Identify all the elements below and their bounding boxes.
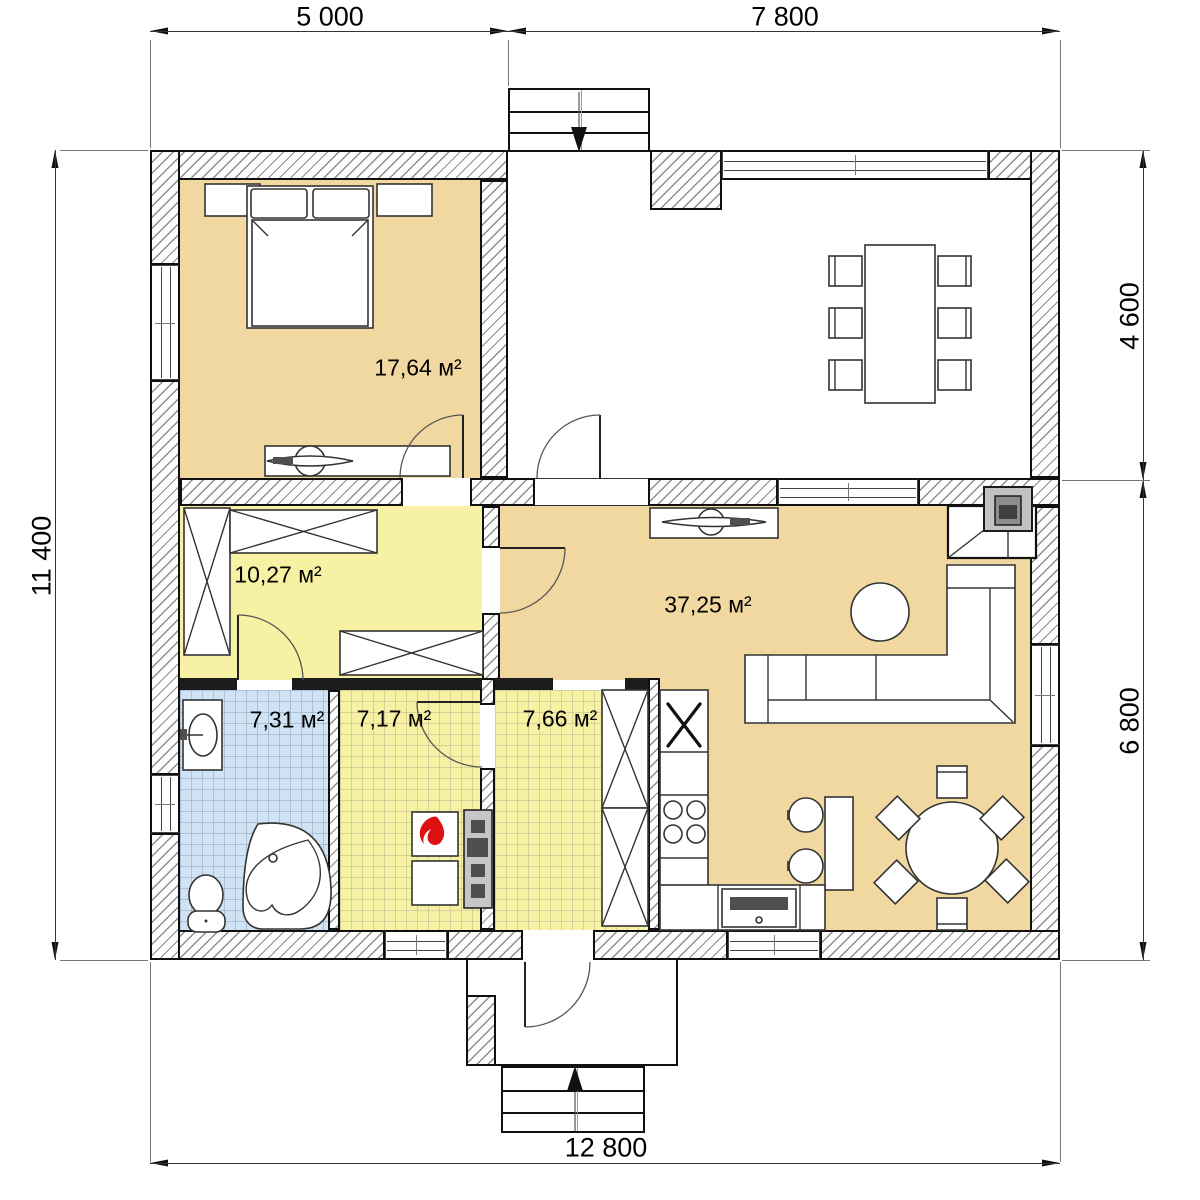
chair bbox=[829, 308, 862, 338]
washing-machine bbox=[180, 700, 222, 770]
dim-top-right: 7 800 bbox=[751, 2, 819, 33]
ext-line bbox=[1060, 40, 1061, 148]
room-label-living: 37,25 м² bbox=[664, 592, 751, 619]
floor-plan-canvas: 5 000 7 800 11 400 4 600 6 800 12 800 17… bbox=[0, 0, 1200, 1200]
ext-line bbox=[150, 962, 151, 1162]
ext-line bbox=[150, 40, 151, 148]
chimney-flue bbox=[464, 810, 492, 908]
bar-counter bbox=[825, 797, 853, 890]
ext-line bbox=[60, 150, 148, 151]
ext-line bbox=[508, 40, 509, 86]
hall-living-door bbox=[500, 548, 565, 613]
ext-line bbox=[1062, 480, 1150, 481]
ext-line bbox=[60, 960, 148, 961]
living-convector bbox=[650, 508, 778, 538]
bathroom-door bbox=[238, 615, 303, 680]
bar-stool bbox=[787, 798, 823, 832]
furniture-layer bbox=[0, 0, 1200, 1200]
chair bbox=[938, 308, 971, 338]
dim-left: 11 400 bbox=[27, 516, 58, 597]
chair bbox=[937, 898, 967, 930]
room-label-bathroom: 7,31 м² bbox=[250, 707, 325, 734]
chair bbox=[938, 360, 971, 390]
boiler-cabinet bbox=[412, 861, 458, 905]
dim-line-top bbox=[150, 31, 1060, 32]
room-label-tambour: 7,66 м² bbox=[523, 706, 598, 733]
dim-bottom: 12 800 bbox=[565, 1133, 648, 1164]
chair bbox=[829, 360, 862, 390]
wardrobe bbox=[340, 631, 483, 675]
toilet bbox=[188, 875, 225, 932]
room-label-hallway: 10,27 м² bbox=[234, 562, 321, 589]
corner-bathtub bbox=[243, 823, 331, 929]
wardrobe bbox=[230, 510, 377, 553]
bedroom-convector bbox=[265, 446, 450, 476]
fireplace bbox=[948, 487, 1036, 558]
dining-door bbox=[537, 415, 600, 478]
entrance-door bbox=[525, 962, 590, 1027]
ext-line bbox=[1062, 960, 1150, 961]
dim-right-upper: 4 600 bbox=[1115, 282, 1146, 350]
ext-line bbox=[1062, 150, 1150, 151]
oven bbox=[722, 889, 796, 927]
nightstand-right bbox=[377, 184, 432, 216]
room-label-bedroom: 17,64 м² bbox=[374, 355, 461, 382]
chair bbox=[937, 766, 967, 798]
dim-line-right bbox=[1143, 150, 1144, 960]
entry-arrow-down-icon bbox=[571, 92, 587, 152]
wardrobe bbox=[184, 508, 230, 655]
double-bed bbox=[247, 186, 373, 328]
bar-stool bbox=[787, 849, 823, 883]
boiler bbox=[412, 812, 458, 856]
ext-line bbox=[1060, 962, 1061, 1162]
chair bbox=[938, 256, 971, 286]
room-label-boiler: 7,17 м² bbox=[357, 706, 432, 733]
dining-table bbox=[865, 245, 935, 403]
dim-right-lower: 6 800 bbox=[1115, 687, 1146, 755]
dim-top-left: 5 000 bbox=[296, 2, 364, 33]
coffee-table bbox=[851, 583, 909, 641]
wardrobe bbox=[602, 690, 648, 926]
chair bbox=[829, 256, 862, 286]
entry-arrow-up-icon bbox=[567, 1066, 583, 1131]
